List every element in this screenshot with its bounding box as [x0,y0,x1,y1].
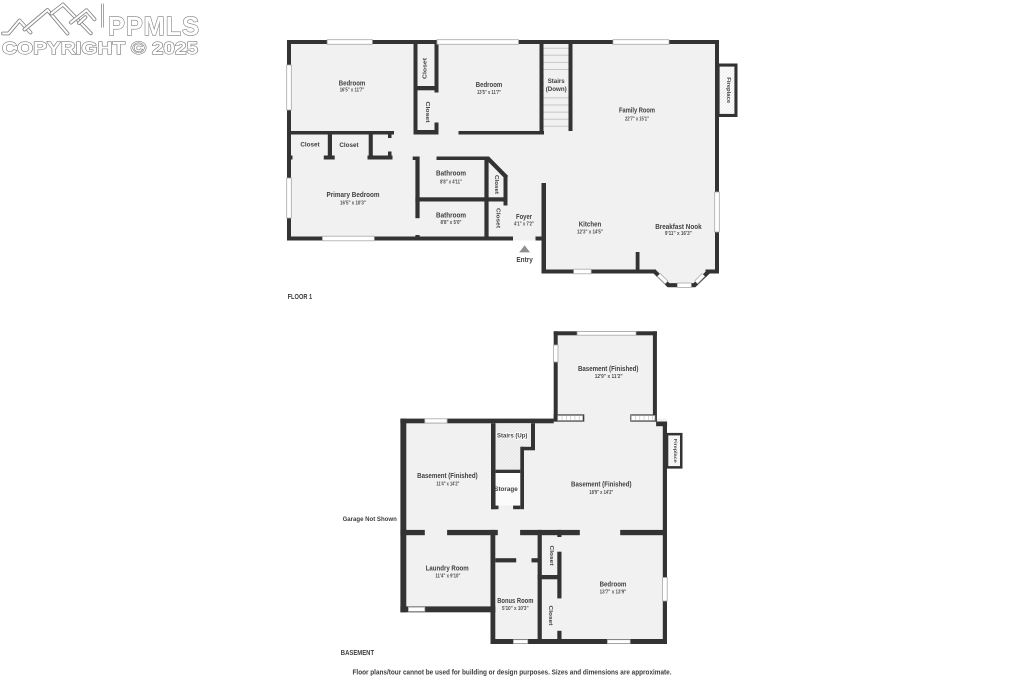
svg-text:Garage Not Shown: Garage Not Shown [343,516,397,523]
svg-text:Foyer: Foyer [516,214,532,221]
svg-text:Closet: Closet [493,175,499,194]
svg-text:Closet: Closet [424,102,430,123]
svg-text:12'3" x 14'5": 12'3" x 14'5" [577,229,603,235]
svg-text:Closet: Closet [548,546,554,566]
svg-text:13'5" x 11'7": 13'5" x 11'7" [477,90,501,96]
svg-text:Basement (Finished): Basement (Finished) [417,473,478,480]
svg-text:4'1" x 7'2": 4'1" x 7'2" [514,222,534,228]
svg-text:Closet: Closet [423,58,429,79]
svg-text:16'5" x 10'3": 16'5" x 10'3" [340,200,366,206]
svg-text:18'9" x 14'2": 18'9" x 14'2" [589,490,613,496]
svg-text:8'8" x 5'0": 8'8" x 5'0" [441,220,462,226]
svg-text:Closet: Closet [339,142,359,149]
svg-text:COPYRIGHT © 2025: COPYRIGHT © 2025 [2,38,198,58]
svg-text:Laundry Room: Laundry Room [426,566,469,573]
svg-text:Stairs (Up): Stairs (Up) [497,432,528,439]
svg-text:FLOOR 1: FLOOR 1 [288,294,313,301]
svg-text:11'4" x 14'2": 11'4" x 14'2" [436,481,459,487]
svg-text:9'11" x 16'3": 9'11" x 16'3" [665,231,692,237]
svg-text:Bedroom: Bedroom [339,80,366,87]
svg-text:Stairs: Stairs [548,78,565,85]
svg-text:Closet: Closet [300,142,320,149]
svg-text:Fireplace: Fireplace [725,77,731,103]
svg-text:Bedroom: Bedroom [476,82,503,89]
svg-text:11'4" x 9'10": 11'4" x 9'10" [435,574,460,580]
svg-text:12'9" x 11'2": 12'9" x 11'2" [595,374,623,380]
svg-text:Fireplace: Fireplace [673,439,678,464]
svg-text:Floor plans/tour cannot be use: Floor plans/tour cannot be used for buil… [353,669,672,676]
svg-text:Bonus Room: Bonus Room [497,598,533,605]
svg-text:BASEMENT: BASEMENT [341,650,375,657]
svg-text:Basement (Finished): Basement (Finished) [578,366,639,373]
svg-text:(Down): (Down) [546,86,567,93]
svg-text:Basement (Finished): Basement (Finished) [571,482,632,489]
svg-text:Entry: Entry [516,257,533,264]
svg-text:5'10" x 10'3": 5'10" x 10'3" [502,606,529,612]
svg-text:Family Room: Family Room [619,108,655,115]
svg-text:Closet: Closet [547,606,553,626]
svg-text:Bathroom: Bathroom [436,212,466,219]
svg-text:PPMLS: PPMLS [108,11,200,41]
svg-text:13'7" x 13'9": 13'7" x 13'9" [600,590,627,596]
svg-text:22'7" x 15'1": 22'7" x 15'1" [625,117,649,123]
svg-text:Bathroom: Bathroom [436,171,466,178]
svg-text:8'8" x 4'11": 8'8" x 4'11" [440,179,462,185]
svg-text:Kitchen: Kitchen [579,221,602,228]
svg-text:Storage: Storage [494,486,518,493]
svg-text:Closet: Closet [495,208,501,228]
svg-text:16'5" x 11'7": 16'5" x 11'7" [340,87,365,93]
svg-text:Bedroom: Bedroom [600,582,627,589]
svg-text:Primary Bedroom: Primary Bedroom [327,192,380,199]
